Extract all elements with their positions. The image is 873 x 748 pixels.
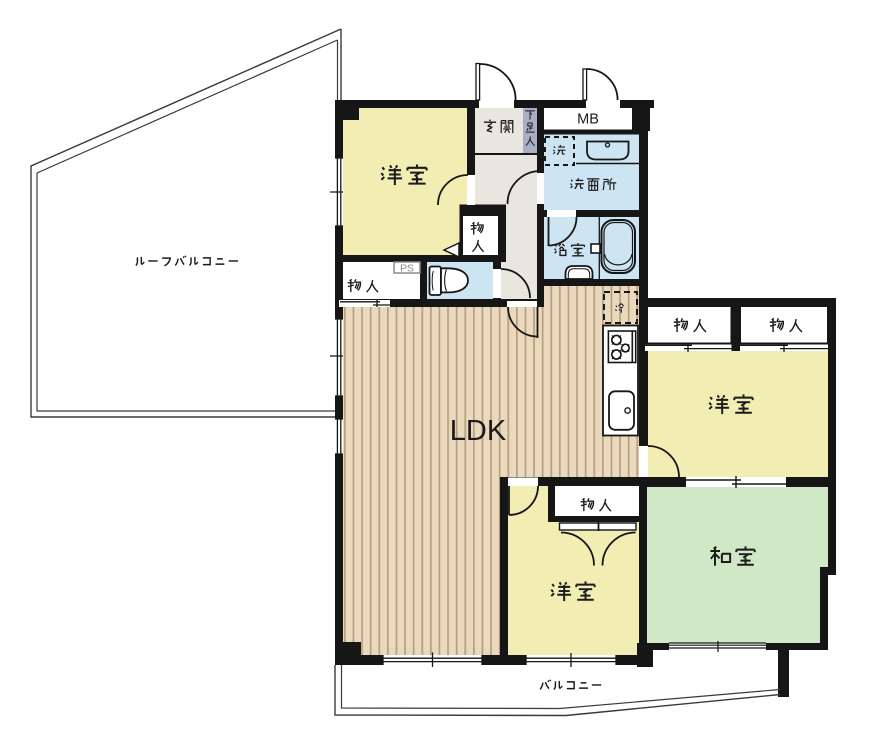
svg-text:MB: MB — [577, 112, 599, 128]
svg-text:LDK: LDK — [450, 415, 507, 447]
svg-text:PS: PS — [400, 263, 414, 275]
